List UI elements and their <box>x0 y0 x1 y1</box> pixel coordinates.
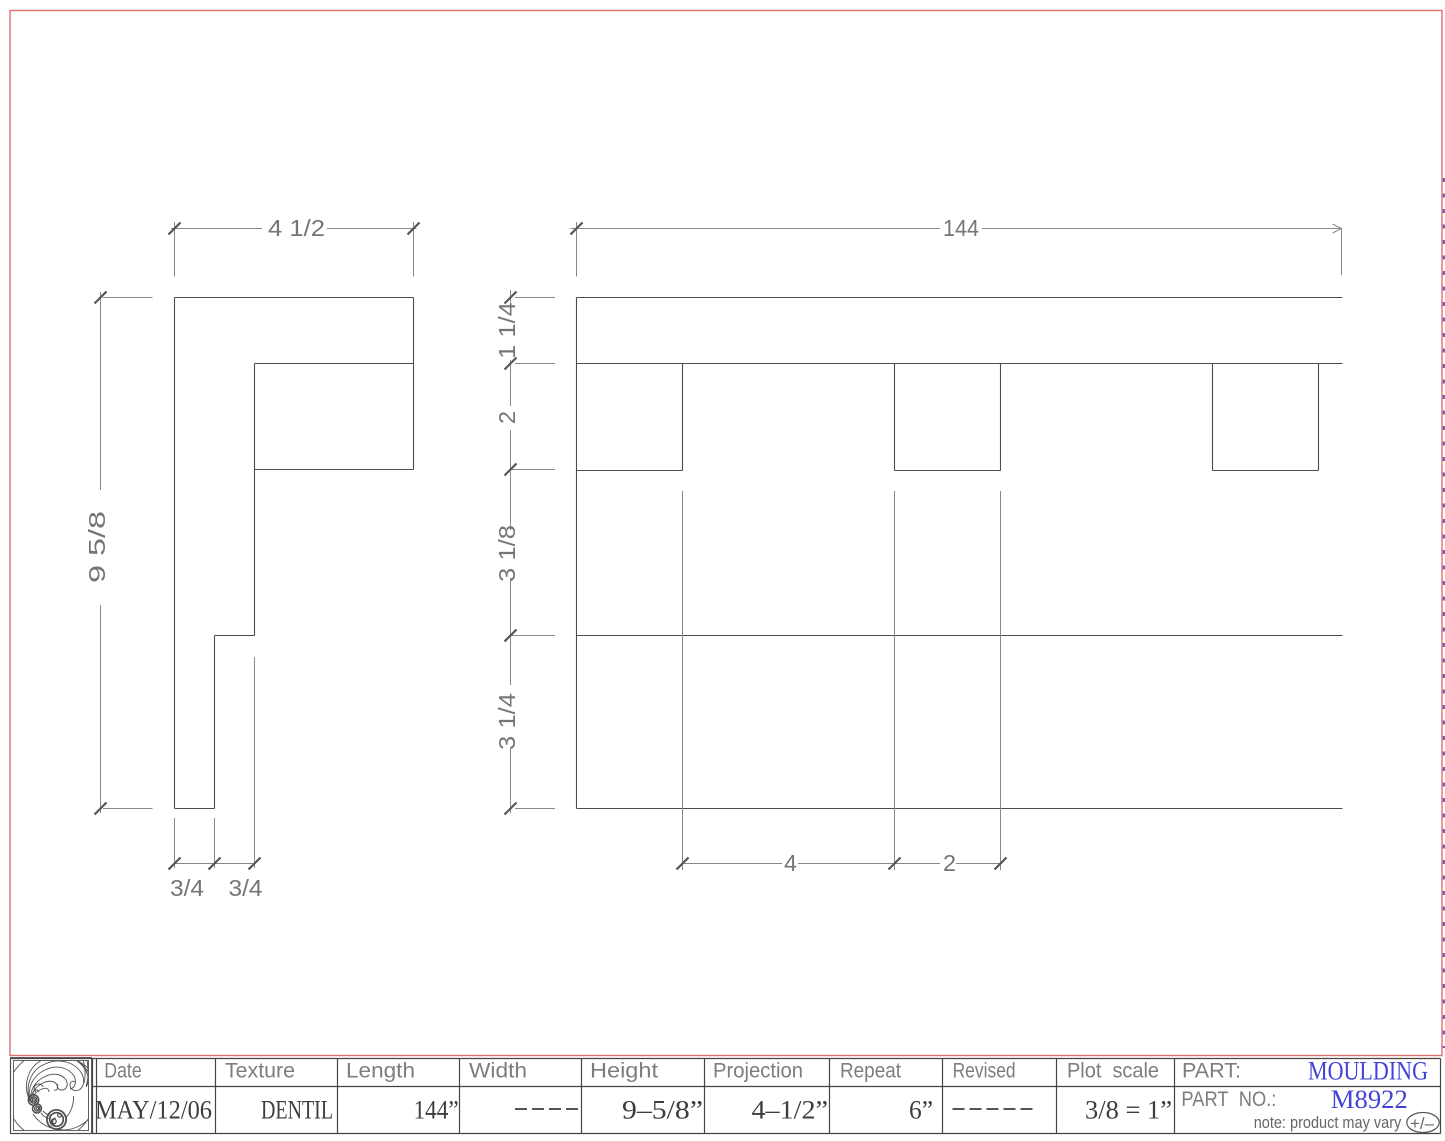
svg-text:2: 2 <box>494 411 520 424</box>
svg-text:4: 4 <box>784 850 797 876</box>
svg-text:6”: 6” <box>909 1095 933 1124</box>
svg-text:PART:: PART: <box>1182 1060 1241 1083</box>
svg-text:Projection: Projection <box>713 1060 803 1083</box>
svg-text:3/4: 3/4 <box>170 875 204 901</box>
svg-text:Texture: Texture <box>225 1060 295 1083</box>
svg-text:MAY/12/06: MAY/12/06 <box>95 1095 212 1124</box>
svg-text:Length: Length <box>346 1060 415 1083</box>
svg-text:+/–: +/– <box>1410 1114 1435 1133</box>
svg-text:3 1/8: 3 1/8 <box>494 525 520 582</box>
svg-text:4–1/2”: 4–1/2” <box>752 1095 829 1124</box>
svg-text:3/4: 3/4 <box>229 875 263 901</box>
svg-text:2: 2 <box>943 850 956 876</box>
svg-text:144”: 144” <box>414 1095 459 1124</box>
svg-text:4 1/2: 4 1/2 <box>268 215 325 241</box>
svg-text:Date: Date <box>104 1060 141 1083</box>
svg-text:9–5/8”: 9–5/8” <box>622 1095 703 1124</box>
svg-text:9 5/8: 9 5/8 <box>84 511 110 583</box>
svg-text:3/8 = 1”: 3/8 = 1” <box>1085 1095 1172 1124</box>
svg-text:PART NO.:: PART NO.: <box>1181 1088 1276 1111</box>
svg-text:note: product may vary: note: product may vary <box>1254 1113 1402 1132</box>
svg-text:M8922: M8922 <box>1331 1085 1408 1114</box>
svg-text:Width: Width <box>469 1060 527 1083</box>
svg-text:Revised: Revised <box>953 1060 1016 1083</box>
svg-text:Repeat: Repeat <box>840 1060 901 1083</box>
svg-text:3 1/4: 3 1/4 <box>494 693 520 750</box>
svg-text:1 1/4: 1 1/4 <box>494 302 520 359</box>
svg-text:Height: Height <box>590 1060 658 1083</box>
svg-text:MOULDING: MOULDING <box>1308 1057 1428 1086</box>
svg-text:144: 144 <box>943 215 979 241</box>
svg-text:DENTIL: DENTIL <box>261 1095 333 1124</box>
svg-text:Plot scale: Plot scale <box>1067 1060 1159 1083</box>
